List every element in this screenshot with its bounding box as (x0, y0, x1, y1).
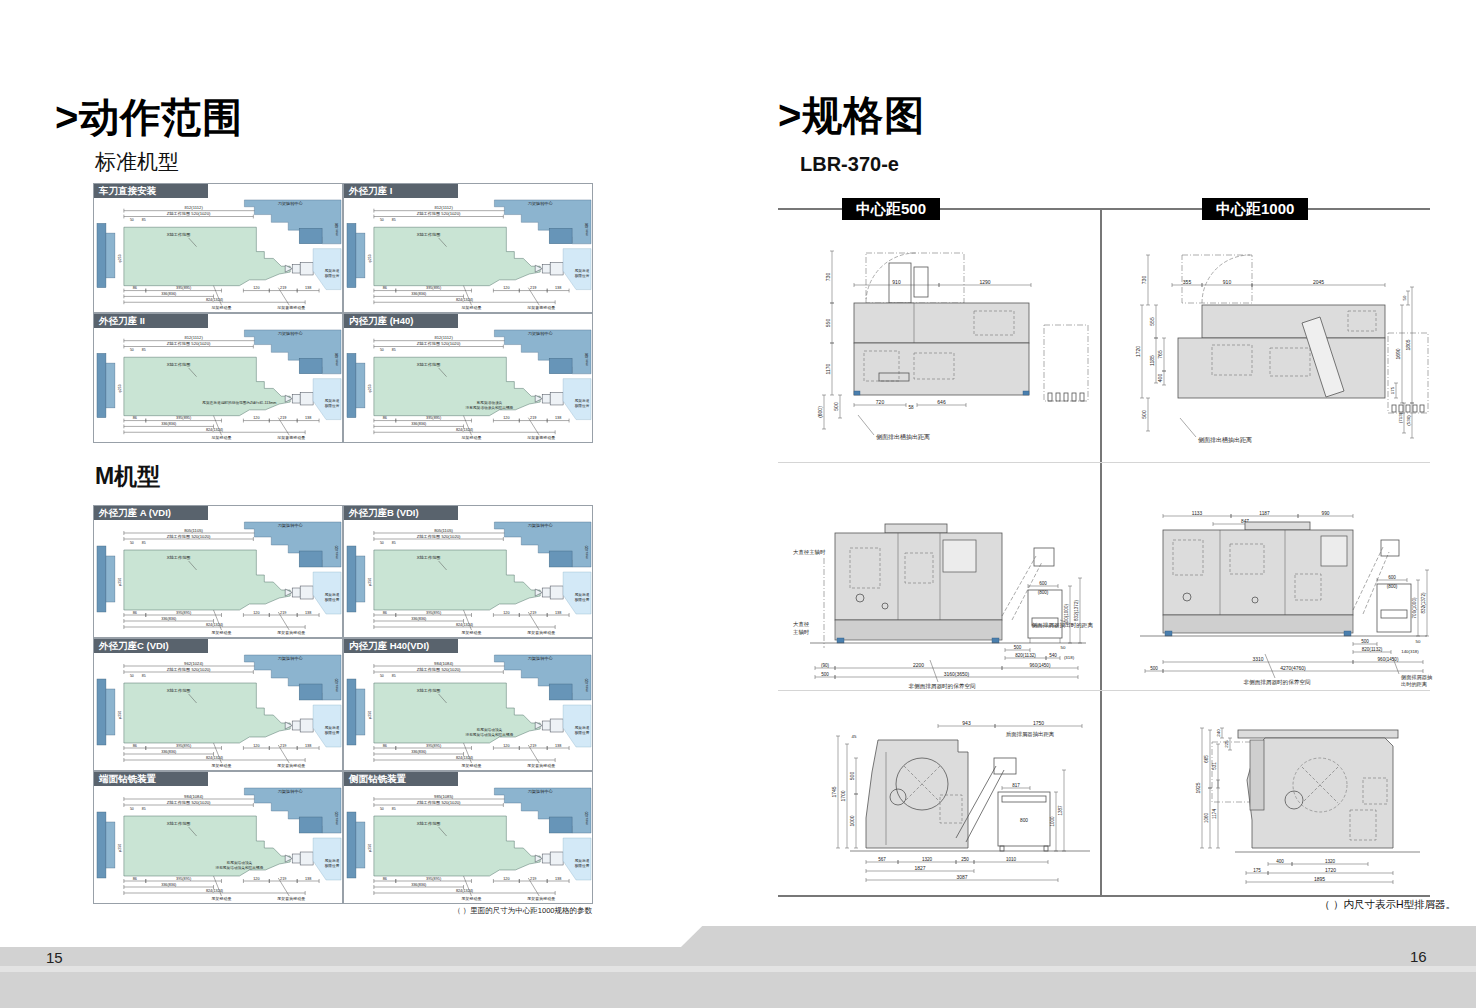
svg-text:120: 120 (503, 744, 509, 748)
svg-text:出时的距离: 出时的距离 (1401, 681, 1428, 688)
range-diagram: φ250812(1112)Z轴工作范围 520(1020)5085X轴工作范围刀… (344, 328, 592, 442)
svg-text:50: 50 (380, 807, 384, 811)
svg-text:395(895): 395(895) (176, 416, 192, 420)
svg-text:175: 175 (1390, 386, 1395, 394)
svg-text:120: 120 (253, 877, 259, 881)
range-panel: 外径刀座B (VDI)φ250805(1105)Z轴工作范围 520(1020)… (343, 505, 593, 638)
svg-text:219: 219 (530, 416, 536, 420)
svg-text:812(1112): 812(1112) (434, 335, 453, 340)
svg-text:138: 138 (555, 877, 561, 881)
page-number-left: 15 (46, 949, 63, 966)
svg-text:尾架后退: 尾架后退 (575, 725, 590, 730)
svg-text:50: 50 (130, 348, 134, 352)
svg-text:50: 50 (380, 541, 384, 545)
svg-text:500: 500 (849, 772, 855, 781)
svg-text:1187: 1187 (1259, 511, 1270, 516)
svg-text:120: 120 (503, 877, 509, 881)
spec-diagram-side1000: 2402256655311925106011744001320175172018… (1150, 700, 1440, 895)
svg-text:175: 175 (1253, 868, 1261, 873)
svg-text:120: 120 (253, 416, 259, 420)
svg-text:824(1324): 824(1324) (456, 428, 474, 432)
svg-text:984(1084): 984(1084) (434, 661, 454, 666)
center-distance-1000-badge: 中心距1000 (1202, 198, 1308, 220)
svg-text:50: 50 (130, 218, 134, 222)
svg-text:max 420: max 420 (585, 223, 589, 236)
svg-text:86: 86 (383, 611, 387, 615)
svg-text:3087: 3087 (956, 874, 967, 880)
svg-text:219: 219 (280, 416, 286, 420)
footer-stripe (0, 966, 1476, 972)
svg-text:395(895): 395(895) (176, 877, 192, 881)
svg-text:φ250: φ250 (118, 711, 122, 719)
svg-text:Z轴工作范围 520(1020): Z轴工作范围 520(1020) (417, 211, 461, 216)
svg-text:138: 138 (555, 611, 561, 615)
footer-band (0, 947, 1476, 1008)
footer-step-band (680, 926, 1476, 948)
svg-text:832(1372): 832(1372) (1074, 600, 1079, 621)
svg-text:50: 50 (380, 218, 384, 222)
svg-text:1720: 1720 (1325, 867, 1336, 873)
svg-text:646: 646 (937, 399, 946, 405)
svg-text:1827: 1827 (914, 865, 925, 871)
svg-text:3310: 3310 (1252, 656, 1263, 662)
spec-drawing-frame: 中心距500 中心距1000 91012907305501170(600)500… (778, 196, 1430, 910)
svg-text:820(1132): 820(1132) (1362, 647, 1383, 652)
svg-text:X轴工作范围: X轴工作范围 (167, 232, 191, 237)
svg-text:后面排屑器抽出距离: 后面排屑器抽出距离 (1006, 731, 1055, 738)
svg-text:730: 730 (1141, 276, 1147, 285)
svg-text:219: 219 (530, 286, 536, 290)
range-diagram: φ250805(1105)Z轴工作范围 520(1020)5085X轴工作范围刀… (344, 520, 592, 637)
svg-text:219: 219 (530, 744, 536, 748)
range-panel: 内径刀座 (H40)φ250812(1112)Z轴工作范围 520(1020)5… (343, 313, 593, 443)
svg-text:555: 555 (1149, 317, 1155, 326)
svg-text:尾架移动量: 尾架移动量 (462, 305, 482, 310)
svg-text:极限位置: 极限位置 (324, 598, 340, 602)
range-panel-title: 车刀直接安装 (94, 184, 208, 198)
svg-text:尾架移动量: 尾架移动量 (212, 896, 232, 901)
svg-text:尾架套筒移动量: 尾架套筒移动量 (527, 763, 555, 768)
svg-text:86: 86 (383, 877, 387, 881)
svg-text:尾架移动量: 尾架移动量 (462, 896, 482, 901)
spec-diagram-plan1000: 3559102045730555172011857654005005016901… (1120, 233, 1430, 463)
spec-diagram-front500: 600(800)700(1000)832(1372)500820(1132)54… (790, 498, 1095, 693)
range-panel-title: 内径刀座 (H40) (344, 314, 458, 328)
svg-text:219: 219 (280, 286, 286, 290)
svg-text:500: 500 (1141, 410, 1147, 419)
spec-diagram-svg: 9431750后面排屑器抽出距离451745170050010008178001… (790, 700, 1095, 895)
svg-text:138: 138 (555, 744, 561, 748)
svg-text:832(1372): 832(1372) (1421, 592, 1426, 613)
svg-text:1700: 1700 (840, 790, 846, 801)
svg-text:尾架后退: 尾架后退 (575, 858, 590, 863)
svg-text:250: 250 (961, 857, 969, 862)
svg-text:φ250: φ250 (118, 844, 122, 852)
svg-text:尾架套筒移动量: 尾架套筒移动量 (527, 630, 555, 635)
svg-text:侧面排屑器抽: 侧面排屑器抽 (1400, 674, 1432, 681)
spec-diagram-svg: 2402256655311925106011744001320175172018… (1150, 700, 1440, 895)
svg-text:120: 120 (503, 611, 509, 615)
svg-text:1387: 1387 (1058, 805, 1063, 816)
svg-text:刀架旋转中心: 刀架旋转中心 (528, 331, 554, 336)
svg-text:500: 500 (1150, 666, 1158, 671)
svg-text:尾架后退: 尾架后退 (325, 725, 340, 730)
svg-text:1000: 1000 (849, 815, 855, 826)
svg-text:85: 85 (392, 807, 396, 811)
svg-text:刀架旋转中心: 刀架旋转中心 (278, 201, 304, 206)
svg-text:尾架套筒移动量: 尾架套筒移动量 (277, 435, 305, 440)
range-panel-title: 外径刀座 I (344, 184, 458, 198)
column-divider (1100, 208, 1102, 895)
range-panel: 外径刀座C (VDI)φ250962(1024)Z轴工作范围 520(1020)… (93, 638, 343, 771)
svg-text:120: 120 (503, 416, 509, 420)
svg-text:1170: 1170 (825, 363, 831, 374)
svg-text:X轴工作范围: X轴工作范围 (417, 362, 441, 367)
spec-diagram-svg: 600(800)700(1000)832(1372)500820(1132)54… (790, 498, 1095, 693)
svg-text:50: 50 (130, 541, 134, 545)
svg-text:2200: 2200 (913, 662, 924, 668)
spec-diagram-plan500: 91012907305501170(600)50072058646侧面排出槽抽出… (794, 233, 1094, 463)
svg-text:820(1132): 820(1132) (1015, 653, 1036, 658)
svg-text:(536): (536) (1406, 415, 1411, 426)
svg-text:960(1450): 960(1450) (1030, 663, 1051, 668)
svg-text:尾架移动量: 尾架移动量 (462, 763, 482, 768)
svg-text:尾架套筒移动量: 尾架套筒移动量 (527, 435, 555, 440)
svg-text:1060: 1060 (1204, 812, 1209, 823)
svg-text:max 420: max 420 (585, 545, 589, 558)
spec-diagram-side500: 9431750后面排屑器抽出距离451745170050010008178001… (790, 700, 1095, 895)
svg-text:120: 120 (503, 286, 509, 290)
right-footnote: （ ）内尺寸表示H型排屑器。 (1040, 898, 1456, 912)
svg-text:336(836): 336(836) (161, 292, 177, 296)
svg-text:X轴工作范围: X轴工作范围 (167, 362, 191, 367)
svg-text:1805: 1805 (1405, 339, 1411, 350)
svg-text:主轴时: 主轴时 (793, 629, 810, 636)
svg-text:Z轴工作范围 520(1020): Z轴工作范围 520(1020) (167, 800, 211, 805)
svg-text:没有尾架活动顶尖和拉出螺母: 没有尾架活动顶尖和拉出螺母 (466, 405, 514, 410)
svg-text:极限位置: 极限位置 (574, 274, 590, 278)
svg-text:4270(4760): 4270(4760) (1280, 665, 1306, 671)
left-page-title: >动作范围 (55, 90, 243, 145)
svg-text:824(1324): 824(1324) (206, 756, 224, 760)
svg-text:Z轴工作范围 520(1020): Z轴工作范围 520(1020) (417, 667, 461, 672)
svg-text:395(895): 395(895) (426, 416, 442, 420)
svg-text:尾架套筒移动量: 尾架套筒移动量 (277, 896, 305, 901)
svg-text:943: 943 (962, 720, 971, 726)
svg-text:侧面排屑器抽出时的距离: 侧面排屑器抽出时的距离 (1031, 622, 1093, 629)
svg-text:225: 225 (1224, 740, 1229, 748)
spec-diagram-svg: 91012907305501170(600)50072058646侧面排出槽抽出… (794, 233, 1094, 463)
spec-diagram-front1000: 11331187990847600(800)700(1000)832(1372)… (1125, 492, 1435, 692)
svg-text:812(1112): 812(1112) (434, 205, 453, 210)
svg-text:85: 85 (392, 348, 396, 352)
svg-text:刀架旋转中心: 刀架旋转中心 (528, 656, 554, 661)
svg-text:824(1324): 824(1324) (456, 756, 474, 760)
svg-text:500: 500 (833, 402, 839, 411)
svg-text:Z轴工作范围 520(1020): Z轴工作范围 520(1020) (417, 800, 461, 805)
svg-text:219: 219 (280, 611, 286, 615)
svg-text:219: 219 (280, 877, 286, 881)
svg-text:大直径: 大直径 (793, 621, 810, 627)
svg-text:尾架套筒移动量: 尾架套筒移动量 (527, 896, 555, 901)
svg-text:531: 531 (1212, 762, 1217, 770)
m-section-heading: M机型 (95, 461, 160, 492)
svg-text:1320: 1320 (922, 857, 933, 862)
svg-text:max 420: max 420 (335, 353, 339, 366)
svg-text:刀架旋转中心: 刀架旋转中心 (528, 523, 554, 528)
svg-text:219: 219 (530, 877, 536, 881)
svg-text:1320: 1320 (1325, 859, 1336, 864)
svg-text:max 420: max 420 (585, 353, 589, 366)
svg-text:刀架旋转中心: 刀架旋转中心 (278, 523, 304, 528)
svg-text:85: 85 (392, 218, 396, 222)
svg-text:86: 86 (383, 744, 387, 748)
right-page-title: >规格图 (778, 88, 925, 143)
svg-text:max 420: max 420 (335, 223, 339, 236)
svg-text:85: 85 (142, 541, 146, 545)
svg-text:刀架旋转中心: 刀架旋转中心 (278, 789, 304, 794)
svg-text:824(1324): 824(1324) (206, 298, 224, 302)
svg-text:(713): (713) (1398, 412, 1403, 423)
svg-text:984(1084): 984(1084) (184, 794, 204, 799)
svg-text:86: 86 (133, 611, 137, 615)
svg-text:138: 138 (305, 416, 311, 420)
svg-text:600: 600 (1039, 581, 1047, 586)
svg-text:120: 120 (253, 286, 259, 290)
svg-text:336(836): 336(836) (411, 617, 427, 621)
svg-text:尾架后退: 尾架后退 (575, 268, 590, 273)
svg-text:非侧面排屑器时的保养空间: 非侧面排屑器时的保养空间 (1243, 679, 1311, 686)
svg-text:86: 86 (383, 286, 387, 290)
svg-text:962(1024): 962(1024) (184, 661, 204, 666)
svg-text:817: 817 (1012, 783, 1020, 788)
svg-text:824(1324): 824(1324) (456, 889, 474, 893)
svg-text:85: 85 (142, 807, 146, 811)
svg-text:max 420: max 420 (335, 678, 339, 691)
range-diagram: φ250984(1084)Z轴工作范围 520(1020)5085X轴工作范围刀… (344, 653, 592, 770)
svg-text:2045: 2045 (1313, 279, 1324, 285)
svg-text:尾架移动量: 尾架移动量 (462, 630, 482, 635)
svg-text:尾架后退: 尾架后退 (325, 398, 340, 403)
svg-text:1290: 1290 (979, 279, 990, 285)
svg-text:3160(3650): 3160(3650) (944, 671, 970, 677)
svg-text:尾架移动量: 尾架移动量 (212, 305, 232, 310)
svg-text:1133: 1133 (1192, 511, 1203, 516)
svg-text:Z轴工作范围 520(1020): Z轴工作范围 520(1020) (417, 534, 461, 539)
svg-text:85: 85 (392, 674, 396, 678)
svg-text:极限位置: 极限位置 (324, 864, 340, 868)
svg-text:极限位置: 极限位置 (574, 404, 590, 408)
svg-text:Z轴工作范围 520(1020): Z轴工作范围 520(1020) (167, 667, 211, 672)
svg-text:336(836): 336(836) (161, 422, 177, 426)
svg-text:X轴工作范围: X轴工作范围 (417, 688, 441, 693)
svg-text:尾架后退: 尾架后退 (575, 398, 590, 403)
svg-text:φ250: φ250 (118, 384, 122, 392)
svg-text:没有尾架活动顶尖和拉出螺母: 没有尾架活动顶尖和拉出螺母 (465, 732, 513, 737)
range-panel-title: 外径刀座C (VDI) (94, 639, 208, 653)
svg-text:非侧面排屑器时的保养空间: 非侧面排屑器时的保养空间 (908, 683, 976, 690)
svg-text:120: 120 (253, 611, 259, 615)
range-panel-title: 侧面钻铣装置 (344, 772, 458, 786)
range-panel-title: 外径刀座 II (94, 314, 208, 328)
spec-diagram-svg: 3559102045730555172011857654005005016901… (1120, 233, 1430, 463)
svg-text:有尾架活动顶尖: 有尾架活动顶尖 (477, 400, 503, 405)
svg-text:极限位置: 极限位置 (574, 731, 590, 735)
svg-text:138: 138 (305, 877, 311, 881)
svg-text:max 420: max 420 (335, 545, 339, 558)
svg-text:1174: 1174 (1212, 809, 1217, 819)
svg-text:395(895): 395(895) (426, 611, 442, 615)
svg-text:138: 138 (555, 286, 561, 290)
svg-text:φ250: φ250 (368, 711, 372, 719)
svg-text:有尾架活动顶尖: 有尾架活动顶尖 (477, 727, 503, 732)
svg-text:Z轴工作范围 520(1020): Z轴工作范围 520(1020) (417, 341, 461, 346)
svg-text:有尾架活动顶尖: 有尾架活动顶尖 (227, 860, 253, 865)
svg-text:尾架移动量: 尾架移动量 (212, 763, 232, 768)
svg-text:X轴工作范围: X轴工作范围 (167, 688, 191, 693)
svg-text:50: 50 (380, 674, 384, 678)
range-diagram: φ250984(1084)Z轴工作范围 520(1020)5085X轴工作范围刀… (94, 786, 342, 903)
svg-text:500: 500 (1361, 639, 1369, 644)
svg-text:85: 85 (392, 541, 396, 545)
svg-text:Z轴工作范围 520(1020): Z轴工作范围 520(1020) (167, 211, 211, 216)
svg-text:max 420: max 420 (585, 811, 589, 824)
svg-text:812(1112): 812(1112) (184, 205, 203, 210)
svg-text:805(1105): 805(1105) (434, 528, 453, 533)
svg-text:550: 550 (825, 319, 831, 328)
svg-text:侧面排出槽抽出距离: 侧面排出槽抽出距离 (1198, 436, 1252, 444)
svg-text:910: 910 (1223, 279, 1232, 285)
svg-text:刀架旋转中心: 刀架旋转中心 (278, 656, 304, 661)
svg-text:700(1000): 700(1000) (1412, 597, 1417, 618)
svg-text:540: 540 (1049, 653, 1057, 658)
svg-text:336(836): 336(836) (411, 292, 427, 296)
svg-text:800: 800 (1020, 818, 1028, 823)
svg-text:50: 50 (380, 348, 384, 352)
svg-text:尾架移动量: 尾架移动量 (212, 435, 232, 440)
svg-text:(318): (318) (1064, 655, 1075, 660)
svg-text:1185: 1185 (1149, 355, 1155, 366)
svg-text:φ250: φ250 (368, 254, 372, 262)
svg-text:侧面排出槽抽出距离: 侧面排出槽抽出距离 (876, 433, 930, 441)
svg-text:尾架后退: 尾架后退 (325, 592, 340, 597)
standard-section-heading: 标准机型 (95, 148, 179, 176)
svg-text:395(895): 395(895) (176, 286, 192, 290)
svg-text:1720: 1720 (1135, 346, 1141, 357)
svg-text:(800): (800) (1038, 590, 1049, 595)
svg-text:尾架移动量: 尾架移动量 (212, 630, 232, 635)
svg-text:45: 45 (852, 734, 857, 739)
svg-text:824(1324): 824(1324) (206, 623, 224, 627)
svg-text:max 420: max 420 (585, 678, 589, 691)
svg-text:824(1324): 824(1324) (206, 428, 224, 432)
svg-text:500: 500 (821, 672, 829, 677)
range-panel: 端面钻铣装置φ250984(1084)Z轴工作范围 520(1020)5085X… (93, 771, 343, 904)
svg-text:1000: 1000 (1050, 816, 1055, 827)
svg-text:φ250: φ250 (368, 384, 372, 392)
svg-text:812(1112): 812(1112) (184, 335, 203, 340)
range-panel: 内径刀座 H40(VDI)φ250984(1084)Z轴工作范围 520(102… (343, 638, 593, 771)
svg-text:大直径主轴时: 大直径主轴时 (793, 549, 826, 556)
svg-text:尾架套筒移动量: 尾架套筒移动量 (277, 630, 305, 635)
svg-text:φ250: φ250 (118, 254, 122, 262)
svg-text:120: 120 (253, 744, 259, 748)
range-diagram: φ250805(1105)Z轴工作范围 520(1020)5085X轴工作范围刀… (94, 520, 342, 637)
svg-text:219: 219 (530, 611, 536, 615)
svg-text:85: 85 (142, 218, 146, 222)
svg-text:395(895): 395(895) (176, 611, 192, 615)
svg-text:尾架套筒移动量: 尾架套筒移动量 (277, 763, 305, 768)
svg-text:720: 720 (876, 399, 885, 405)
page-number-right: 16 (1410, 948, 1427, 965)
svg-text:138: 138 (305, 286, 311, 290)
svg-text:395(895): 395(895) (426, 877, 442, 881)
svg-text:336(836): 336(836) (411, 883, 427, 887)
svg-text:φ250: φ250 (368, 844, 372, 852)
svg-text:(600): (600) (817, 406, 823, 418)
svg-text:X轴工作范围: X轴工作范围 (417, 232, 441, 237)
bottom-rule (778, 895, 1430, 897)
svg-text:960(1450): 960(1450) (1378, 657, 1399, 662)
svg-text:max 420: max 420 (335, 811, 339, 824)
range-diagram: φ250962(1024)Z轴工作范围 520(1020)5085X轴工作范围刀… (94, 653, 342, 770)
svg-text:极限位置: 极限位置 (574, 864, 590, 868)
range-panel: 外径刀座 Iφ250812(1112)Z轴工作范围 520(1020)5085X… (343, 183, 593, 313)
range-diagram: φ250985(1085)Z轴工作范围 520(1020)5085X轴工作范围刀… (344, 786, 592, 903)
svg-text:尾架套筒移动量: 尾架套筒移动量 (527, 305, 555, 310)
left-footnote: （ ）里面的尺寸为中心距1000规格的参数 (290, 906, 592, 916)
svg-text:500: 500 (1014, 645, 1022, 650)
m-panel-grid: 外径刀座 A (VDI)φ250805(1105)Z轴工作范围 520(1020… (93, 505, 593, 904)
svg-text:Z轴工作范围 520(1020): Z轴工作范围 520(1020) (167, 534, 211, 539)
svg-text:86: 86 (383, 416, 387, 420)
svg-text:355: 355 (1183, 279, 1192, 285)
svg-text:尾架在后退端时的移动范围为Z轴行程-113mm: 尾架在后退端时的移动范围为Z轴行程-113mm (202, 400, 276, 405)
svg-text:138: 138 (555, 416, 561, 420)
svg-text:400: 400 (1157, 374, 1163, 383)
svg-text:138: 138 (305, 744, 311, 748)
svg-text:刀架旋转中心: 刀架旋转中心 (528, 789, 554, 794)
svg-text:50: 50 (130, 807, 134, 811)
svg-text:50: 50 (1061, 645, 1066, 650)
svg-text:824(1324): 824(1324) (456, 298, 474, 302)
svg-text:824(1324): 824(1324) (206, 889, 224, 893)
model-name: LBR-370-e (800, 153, 899, 176)
svg-text:336(836): 336(836) (161, 750, 177, 754)
standard-panel-grid: 车刀直接安装φ250812(1112)Z轴工作范围 520(1020)5085X… (93, 183, 593, 443)
range-panel: 侧面钻铣装置φ250985(1085)Z轴工作范围 520(1020)5085X… (343, 771, 593, 904)
range-diagram: φ250812(1112)Z轴工作范围 520(1020)5085X轴工作范围刀… (94, 328, 342, 442)
svg-text:567: 567 (878, 857, 886, 862)
svg-text:805(1105): 805(1105) (184, 528, 203, 533)
svg-text:刀架旋转中心: 刀架旋转中心 (528, 201, 554, 206)
svg-text:尾架后退: 尾架后退 (325, 858, 340, 863)
range-panel-title: 端面钻铣装置 (94, 772, 208, 786)
svg-text:X轴工作范围: X轴工作范围 (167, 821, 191, 826)
svg-text:665: 665 (1204, 755, 1209, 763)
svg-text:1895: 1895 (1314, 876, 1325, 882)
svg-text:336(836): 336(836) (161, 617, 177, 621)
svg-text:336(836): 336(836) (411, 422, 427, 426)
range-panel: 车刀直接安装φ250812(1112)Z轴工作范围 520(1020)5085X… (93, 183, 343, 313)
svg-text:730: 730 (825, 273, 831, 282)
svg-text:Z轴工作范围 520(1020): Z轴工作范围 520(1020) (167, 341, 211, 346)
svg-text:910: 910 (892, 279, 901, 285)
svg-text:50: 50 (1402, 295, 1407, 300)
svg-text:395(895): 395(895) (176, 744, 192, 748)
svg-text:219: 219 (280, 744, 286, 748)
svg-text:(90): (90) (821, 663, 830, 668)
